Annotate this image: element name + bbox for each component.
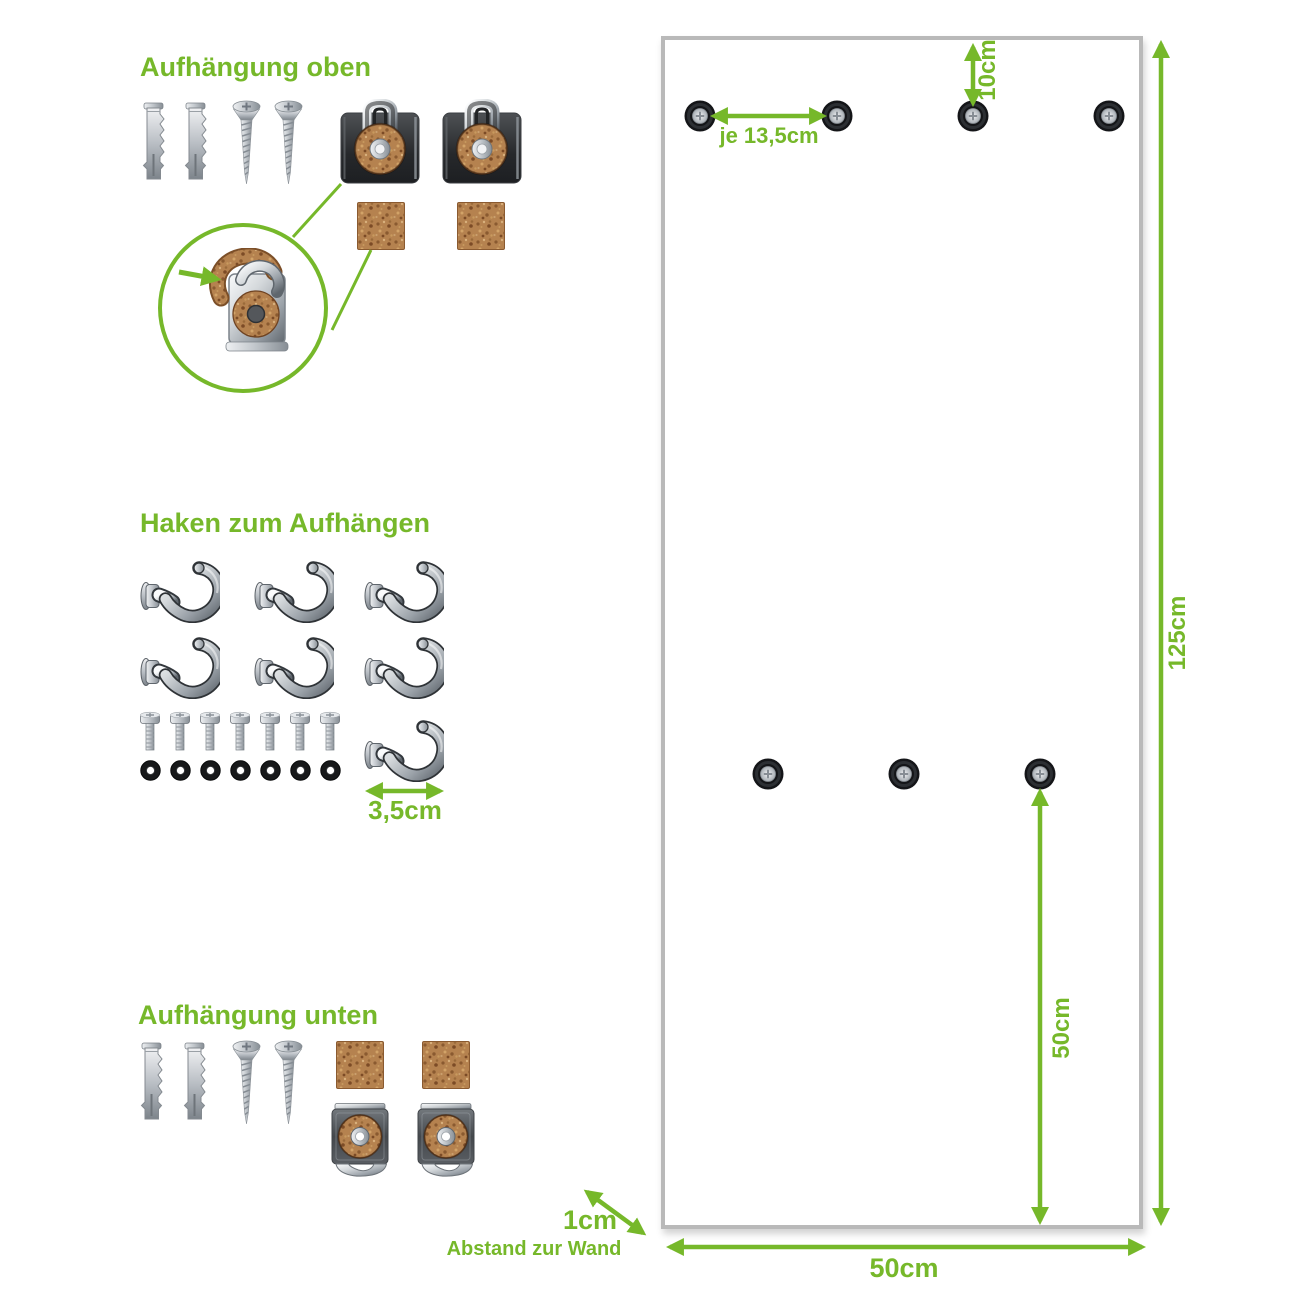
section-title-top-mount: Aufhängung oben (140, 52, 371, 83)
cup-hook-icon (250, 555, 334, 623)
hook-washer-icon (140, 760, 161, 781)
cup-hook-icon (250, 631, 334, 699)
wall-distance-label: 1cm (540, 1206, 640, 1236)
panel-height-label: 125cm (1165, 588, 1191, 678)
drill-hole-icon (1092, 99, 1126, 133)
hook-bolt-icon (319, 711, 341, 753)
glass-clip-top-icon (441, 99, 523, 185)
glass-clip-top-icon (339, 99, 421, 185)
cup-hook-icon (136, 555, 220, 623)
section-title-hooks: Haken zum Aufhängen (140, 508, 430, 539)
cork-pad-icon (457, 202, 505, 250)
magnifier-connector-line (293, 184, 341, 237)
magnifier-connector-line (332, 250, 371, 330)
countersunk-screw-icon (229, 1040, 264, 1128)
cup-hook-icon (136, 631, 220, 699)
countersunk-screw-icon (271, 100, 306, 188)
top-offset-label: 10cm (975, 35, 999, 105)
hook-washer-icon (290, 760, 311, 781)
section-title-bottom-mount: Aufhängung unten (138, 1000, 378, 1031)
hook-washer-icon (260, 760, 281, 781)
hook-bolt-icon (289, 711, 311, 753)
hook-width-label: 3,5cm (345, 796, 465, 825)
mounting-instructions-diagram: Aufhängung oben Haken zum Aufhängen 3,5c… (0, 0, 1300, 1300)
wall-plug-icon (140, 102, 167, 184)
glass-clip-bottom-icon (415, 1103, 477, 1178)
hook-bolt-icon (199, 711, 221, 753)
cork-pad-icon (357, 202, 405, 250)
countersunk-screw-icon (229, 100, 264, 188)
cup-hook-icon (360, 631, 444, 699)
cup-hook-icon (360, 555, 444, 623)
cup-hook-icon (360, 714, 444, 782)
hole-spacing-label: je 13,5cm (699, 124, 839, 148)
wall-plug-icon (138, 1042, 165, 1124)
hook-washer-icon (230, 760, 251, 781)
panel-width-label: 50cm (834, 1254, 974, 1284)
wall-plug-icon (181, 1042, 208, 1124)
bottom-hole-offset-label: 50cm (1049, 988, 1075, 1068)
countersunk-screw-icon (271, 1040, 306, 1128)
drill-hole-icon (1023, 757, 1057, 791)
hook-bolt-icon (229, 711, 251, 753)
glass-clip-bottom-icon (329, 1103, 391, 1178)
clip-cork-detail-icon (193, 248, 298, 363)
drill-hole-icon (751, 757, 785, 791)
hook-washer-icon (170, 760, 191, 781)
hook-bolt-icon (259, 711, 281, 753)
hook-washer-icon (200, 760, 221, 781)
hook-washer-icon (320, 760, 341, 781)
cork-pad-icon (422, 1041, 470, 1089)
hook-bolt-icon (169, 711, 191, 753)
cork-pad-icon (336, 1041, 384, 1089)
drill-hole-icon (887, 757, 921, 791)
wall-distance-caption: Abstand zur Wand (414, 1238, 654, 1260)
hook-bolt-icon (139, 711, 161, 753)
wall-plug-icon (182, 102, 209, 184)
